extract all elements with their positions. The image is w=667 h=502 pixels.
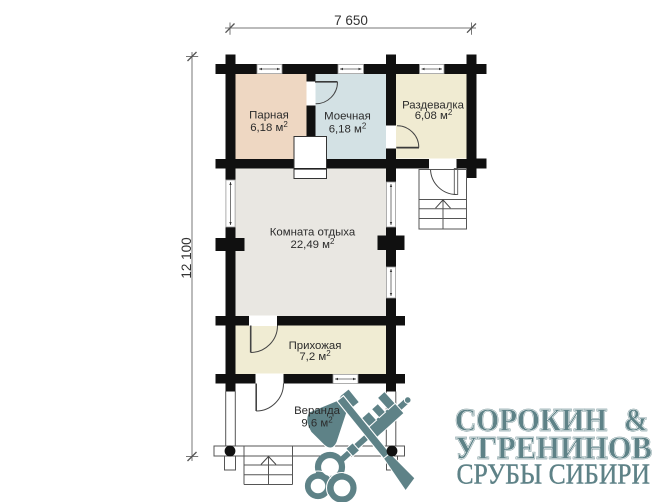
svg-text:6,08 м2: 6,08 м2 [415,108,453,122]
svg-text:6,18 м2: 6,18 м2 [329,122,367,136]
svg-text:7 650: 7 650 [334,13,368,28]
svg-text:12 100: 12 100 [179,237,194,278]
svg-text:22,49 м2: 22,49 м2 [291,237,336,251]
svg-text:СРУБЫ СИБИРИ: СРУБЫ СИБИРИ [457,459,651,491]
svg-text:Комната отдыха: Комната отдыха [270,227,356,239]
svg-text:6,18 м2: 6,18 м2 [250,120,288,134]
svg-text:Веранда: Веранда [294,405,341,417]
